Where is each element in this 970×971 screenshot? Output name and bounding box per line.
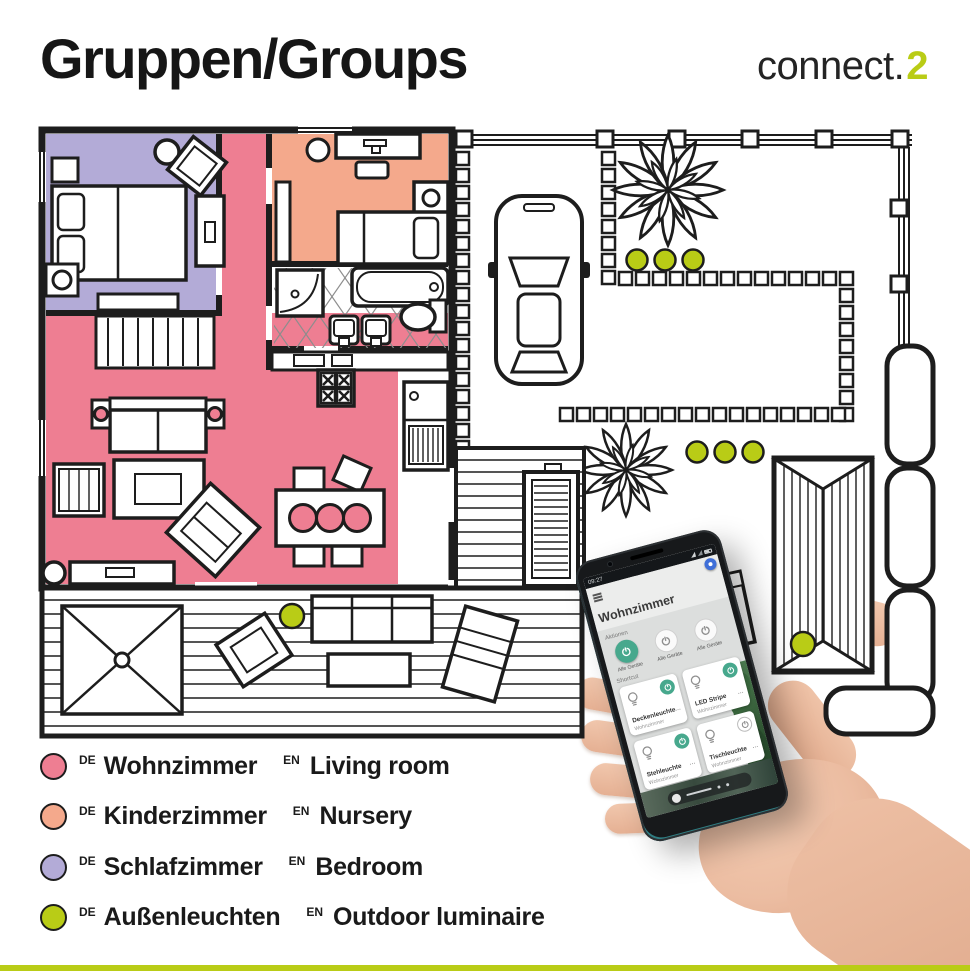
legend: DE Wohnzimmer EN Living room DE Kinderzi…	[40, 741, 545, 943]
bulb-icon	[688, 672, 705, 693]
bulb-icon	[639, 743, 656, 764]
outdoor-light-dot	[791, 632, 815, 656]
card-menu-icon[interactable]: ⋯	[737, 689, 745, 697]
toggle-power[interactable]	[673, 732, 691, 750]
bottom-accent-bar	[0, 965, 970, 971]
parasol	[62, 606, 182, 714]
garden-plant-2	[580, 424, 672, 516]
fence-right	[891, 147, 909, 352]
card-menu-icon[interactable]: ⋯	[752, 743, 760, 751]
legend-row-nursery: DE Kinderzimmer EN Nursery	[40, 792, 545, 843]
car	[488, 196, 590, 384]
legend-dot-living	[40, 753, 67, 780]
deck-terrace	[42, 588, 582, 736]
deck-table	[328, 654, 410, 686]
outdoor-light-dot	[655, 250, 676, 271]
legend-dot-bedroom	[40, 854, 67, 881]
legend-row-outdoor: DE Außenleuchten EN Outdoor luminaire	[40, 893, 545, 944]
sink	[362, 316, 390, 346]
card-menu-icon[interactable]: ⋯	[674, 706, 682, 714]
logo-z: 2	[906, 44, 928, 88]
toggle-power[interactable]	[735, 715, 753, 733]
action-all-devices[interactable]: Alle Geräte	[646, 625, 687, 664]
sofa	[92, 398, 224, 452]
front-camera	[606, 560, 613, 567]
legend-dot-nursery	[40, 803, 67, 830]
bulb-icon	[625, 689, 642, 710]
legend-row-living: DE Wohnzimmer EN Living room	[40, 741, 545, 792]
wardrobe	[196, 196, 224, 266]
bed-single	[338, 212, 448, 264]
garden-sofa	[312, 596, 432, 642]
outdoor-light-dot	[683, 250, 704, 271]
tv-sideboard	[43, 562, 174, 584]
stairs	[96, 316, 214, 368]
power-icon[interactable]	[652, 627, 680, 655]
bedroom-bench	[98, 294, 178, 310]
fence-top	[452, 131, 912, 147]
nursery-stool	[307, 139, 329, 161]
bedroom-lamp-table	[46, 264, 78, 296]
legend-row-bedroom: DE Schlafzimmer EN Bedroom	[40, 842, 545, 893]
stove	[318, 370, 354, 406]
nightstand	[52, 158, 78, 182]
sink	[330, 316, 358, 346]
card-menu-icon[interactable]: ⋯	[689, 760, 697, 768]
action-all-devices[interactable]: Alle Geräte	[607, 636, 648, 675]
folding-gate	[774, 458, 872, 672]
garden-plant-1	[613, 135, 723, 245]
toilet	[401, 300, 446, 332]
device-card-led-stripe[interactable]: LED Stripe ⋯ Wohnzimmer	[681, 656, 751, 720]
outdoor-light-dot	[627, 250, 648, 271]
kitchen-sink-unit	[404, 382, 448, 470]
bulb-icon	[702, 727, 719, 748]
outdoor-light-dot	[687, 442, 708, 463]
page: Gruppen/Groups connect.2	[0, 0, 970, 971]
legend-dot-outdoor	[40, 904, 67, 931]
patio-deck	[456, 448, 584, 594]
toggle-power[interactable]	[658, 678, 676, 696]
outdoor-light-dot	[280, 604, 304, 628]
nursery-shelf	[276, 182, 290, 262]
toggle-power[interactable]	[721, 661, 739, 679]
action-all-devices[interactable]: Alle Geräte	[686, 615, 727, 654]
device-card-deckenleuchte[interactable]: Deckenleuchte ⋯ Wohnzimmer	[618, 673, 688, 737]
logo-text: connect.	[757, 44, 904, 88]
outdoor-light-dot	[715, 442, 736, 463]
brand-logo: connect.2	[757, 44, 928, 89]
grill-unit	[524, 464, 578, 594]
outdoor-light-dot	[743, 442, 764, 463]
side-table	[54, 464, 104, 516]
nursery-cabinet	[414, 182, 448, 214]
page-title: Gruppen/Groups	[40, 26, 467, 91]
menu-icon[interactable]	[592, 591, 603, 603]
power-icon[interactable]	[612, 637, 640, 665]
power-icon[interactable]	[691, 616, 719, 644]
shower	[277, 270, 323, 316]
